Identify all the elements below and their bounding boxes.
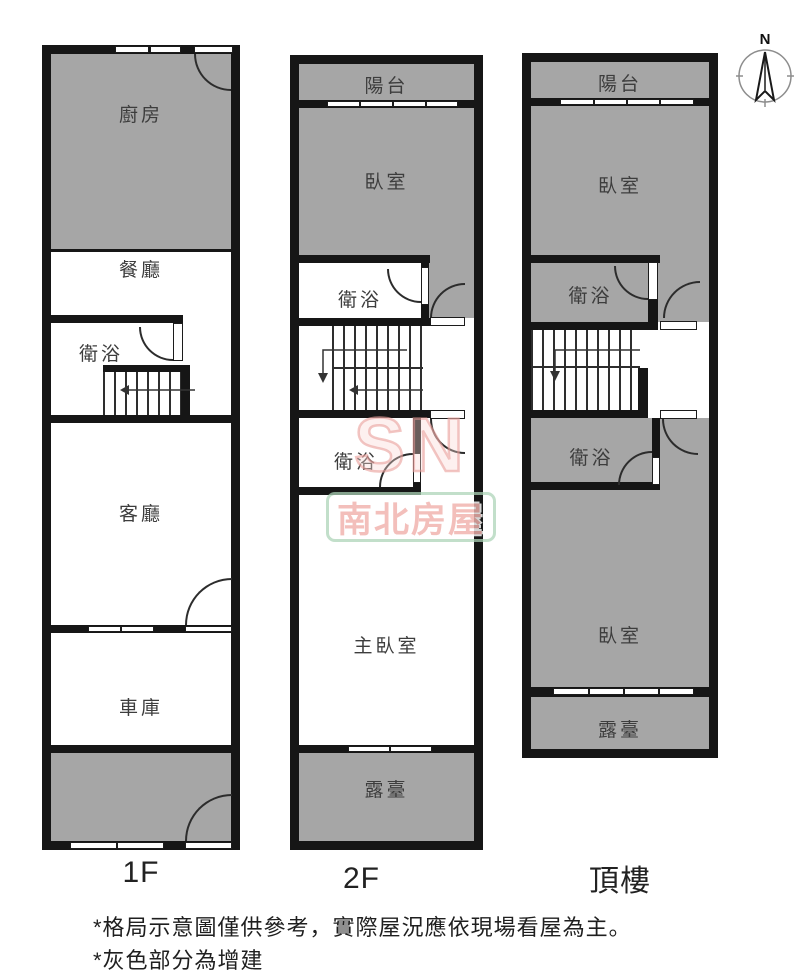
wall <box>42 415 240 423</box>
door-leaf <box>173 323 183 361</box>
wall <box>522 53 531 758</box>
room-label-terrace: 露臺 <box>522 715 718 742</box>
room-label-garage: 車庫 <box>42 693 240 720</box>
wall <box>42 45 51 850</box>
window-divider <box>593 99 595 105</box>
room-label-bedroom: 臥室 <box>290 167 483 194</box>
wall <box>522 749 718 758</box>
door-leaf <box>185 842 232 849</box>
door-leaf <box>430 410 465 419</box>
wall <box>522 410 648 418</box>
wall <box>231 45 240 850</box>
wall <box>42 315 183 323</box>
compass-icon: N <box>733 28 797 110</box>
room-label-kitchen: 廚房 <box>42 100 240 127</box>
wall <box>51 249 231 252</box>
door-leaf <box>413 453 421 483</box>
wall <box>290 841 483 850</box>
floor-label-1f: 1F <box>42 856 240 890</box>
room-label-bath-lower: 衛浴 <box>299 447 413 474</box>
window <box>115 46 149 53</box>
window-divider <box>626 99 628 105</box>
window-divider <box>658 688 660 695</box>
bedroom-rear-area <box>531 490 709 687</box>
floor-label-top: 頂樓 <box>522 856 718 900</box>
door-leaf <box>421 267 429 305</box>
room-label-living: 客廳 <box>42 499 240 526</box>
room-label-bath: 衛浴 <box>51 339 151 366</box>
window-divider <box>588 688 590 695</box>
floor-plan-1f: 廚房 餐廳 衛浴 客廳 車庫 <box>42 45 240 850</box>
room-label-bedroom-rear: 臥室 <box>522 621 718 648</box>
room-label-terrace: 露臺 <box>290 775 483 802</box>
wall <box>103 365 190 372</box>
kitchen-annex-area <box>51 54 231 249</box>
window-divider <box>389 746 391 752</box>
wall <box>290 55 483 64</box>
room-label-balcony: 陽台 <box>290 71 483 98</box>
wall <box>290 487 421 495</box>
wall <box>522 322 658 330</box>
room-label-balcony: 陽台 <box>522 69 718 96</box>
window <box>150 46 181 53</box>
wall <box>290 318 430 326</box>
door-arc <box>185 578 232 625</box>
floor-plan-2f: 陽台 臥室 衛浴 衛浴 主臥室 露臺 <box>290 55 483 850</box>
window-divider <box>659 99 661 105</box>
wall <box>42 745 240 753</box>
floor-plan-top: 陽台 臥室 衛浴 衛浴 臥室 露臺 <box>522 53 718 758</box>
door-leaf <box>652 457 660 485</box>
window-divider <box>623 688 625 695</box>
wall <box>709 53 718 758</box>
stair-direction-arrow <box>117 382 197 398</box>
room-label-bedroom-front: 臥室 <box>522 171 718 198</box>
room-label-dining: 餐廳 <box>42 255 240 282</box>
window-divider <box>116 842 118 849</box>
door-leaf <box>430 317 465 326</box>
window-divider <box>392 101 394 107</box>
door-leaf <box>194 46 233 53</box>
wall <box>290 255 430 263</box>
wall <box>522 255 660 263</box>
floor-label-2f: 2F <box>265 862 458 896</box>
door-arc <box>430 419 465 454</box>
wall <box>522 53 718 62</box>
door-leaf <box>185 626 232 632</box>
door-leaf <box>660 410 697 419</box>
room-label-bath-upper: 衛浴 <box>531 281 650 308</box>
stair-direction-arrow <box>318 343 428 399</box>
window-divider <box>359 101 361 107</box>
footnote-gray-annex: *灰色部分為增建 <box>93 943 264 975</box>
room-label-bath-lower: 衛浴 <box>531 443 652 470</box>
compass-north-label: N <box>760 31 771 48</box>
window-divider <box>425 101 427 107</box>
footnote-disclaimer: *格局示意圖僅供參考，實際屋況應依現場看屋為主。 <box>93 910 632 942</box>
door-leaf <box>660 321 697 330</box>
window-divider <box>120 626 122 632</box>
wall <box>290 410 430 418</box>
room-label-master: 主臥室 <box>290 631 483 658</box>
floor-plan-canvas: 廚房 餐廳 衛浴 客廳 車庫 1F <box>0 0 800 977</box>
room-label-bath-upper: 衛浴 <box>299 285 421 312</box>
stair-direction-arrow <box>550 343 650 388</box>
